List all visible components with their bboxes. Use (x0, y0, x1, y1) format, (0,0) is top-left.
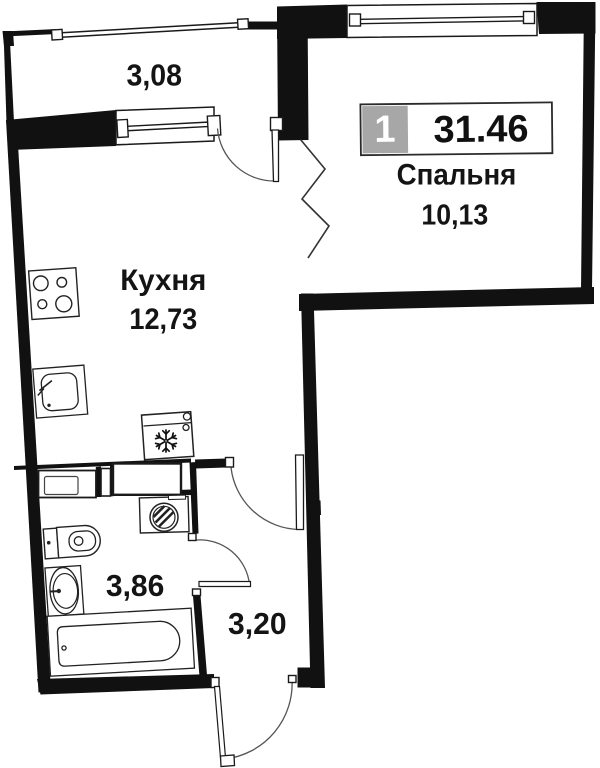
svg-text:3,08: 3,08 (126, 58, 181, 92)
svg-text:Кухня: Кухня (120, 264, 206, 297)
svg-text:3,20: 3,20 (228, 607, 286, 642)
svg-text:12,73: 12,73 (129, 303, 197, 336)
svg-text:Спальня: Спальня (397, 159, 517, 192)
svg-text:1: 1 (374, 109, 396, 151)
svg-text:10,13: 10,13 (421, 198, 488, 230)
svg-text:3,86: 3,86 (106, 569, 164, 604)
svg-text:31.46: 31.46 (433, 108, 529, 151)
